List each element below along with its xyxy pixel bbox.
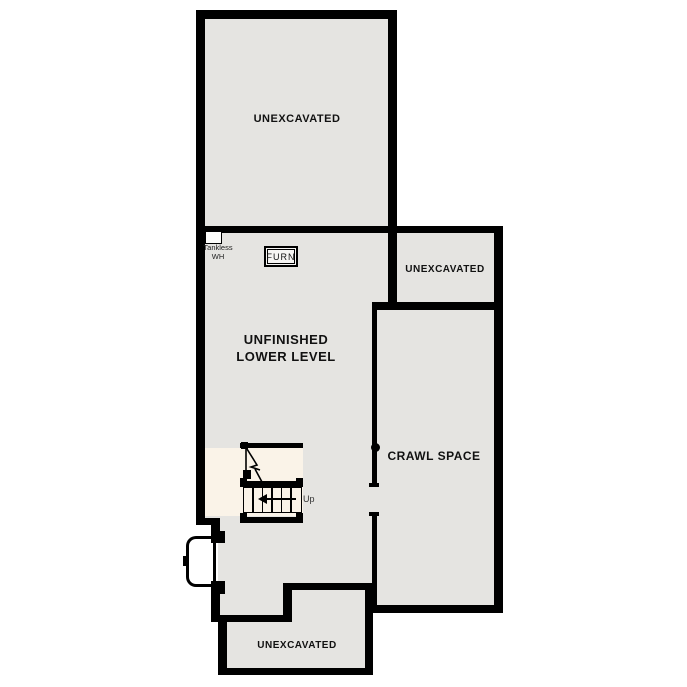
furnace: FURN	[264, 246, 298, 267]
wall-opening-cap-bottom	[369, 512, 379, 516]
stair-wall-post	[240, 513, 247, 522]
wall-bottom-room-bottom	[218, 668, 373, 675]
label-unexcavated-top: UNEXCAVATED	[207, 112, 387, 126]
wall-top	[196, 10, 397, 19]
window-well-window-marker	[183, 556, 188, 566]
label-unfinished-lower-level: UNFINISHED LOWER LEVEL	[206, 332, 366, 366]
label-unfinished-line1: UNFINISHED	[206, 332, 366, 349]
furnace-label: FURN	[267, 249, 295, 264]
label-tankless-line2: WH	[196, 253, 240, 262]
wall-notch-horizontal	[283, 583, 373, 590]
wall-crawl-top-divider	[372, 302, 503, 310]
label-unexcavated-right: UNEXCAVATED	[395, 263, 495, 276]
wall-band-top-room	[196, 226, 503, 233]
wall-stair-bottom	[240, 517, 303, 523]
wall-left	[196, 10, 205, 525]
wall-right	[494, 226, 503, 613]
wall-bottom-left	[211, 615, 292, 622]
stair-wall-post	[296, 513, 303, 522]
floor-plan-canvas: FURN UNEXCAVATED UNEXCAVATED UNFINISHED …	[0, 0, 687, 687]
stair-tread-line	[271, 488, 273, 512]
label-up: Up	[303, 494, 323, 504]
room-fill-lower-level-lower	[218, 518, 376, 588]
stair-upper-flight-break	[238, 438, 308, 488]
label-crawl-space: CRAWL SPACE	[374, 449, 494, 465]
label-unexcavated-bottom: UNEXCAVATED	[227, 639, 367, 652]
wall-bottom-room-right	[365, 583, 373, 675]
wall-notch-vertical	[283, 583, 292, 622]
stair-tread-line	[290, 488, 292, 512]
up-arrow-icon	[258, 494, 267, 504]
stair-tread-line	[252, 488, 254, 512]
label-unfinished-line2: LOWER LEVEL	[206, 349, 366, 366]
wall-opening-cap-top	[369, 483, 379, 487]
window-well	[186, 536, 216, 587]
wall-well-stub-top	[211, 531, 225, 543]
stair-tread-line	[281, 488, 283, 512]
room-fill-unexcavated-bottom	[222, 586, 369, 674]
label-tankless-wh: Tankless WH	[196, 244, 240, 261]
stair-direction-line	[267, 498, 296, 500]
wall-crawl-bottom	[372, 605, 503, 613]
stair-treads	[243, 487, 302, 513]
